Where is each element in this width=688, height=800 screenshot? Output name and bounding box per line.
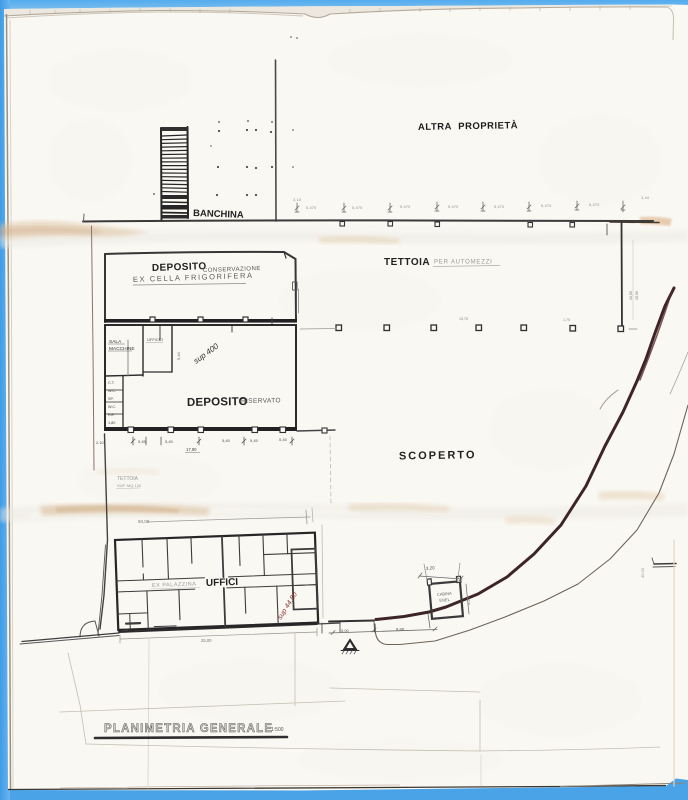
svg-text:UFFICI: UFFICI (206, 577, 239, 589)
svg-text:5,45: 5,45 (165, 439, 174, 444)
svg-text:5,45: 5,45 (250, 438, 259, 443)
svg-text:5,470: 5,470 (494, 205, 505, 209)
svg-text:3,44: 3,44 (641, 196, 649, 200)
svg-text:25,00: 25,00 (201, 638, 212, 643)
svg-text:PLANIMETRIA GENERALE: PLANIMETRIA GENERALE (104, 723, 273, 735)
svg-text:5,45: 5,45 (222, 438, 231, 443)
svg-text:W.C.: W.C. (108, 389, 116, 393)
svg-text:15,75: 15,75 (459, 317, 468, 321)
svg-text:ENEL: ENEL (439, 597, 451, 603)
svg-text:5,470: 5,470 (589, 203, 600, 207)
svg-text:3,10: 3,10 (293, 198, 301, 202)
svg-text:45,00: 45,00 (640, 567, 645, 578)
svg-text:DEPOSITO: DEPOSITO (187, 396, 248, 409)
svg-text:5,44: 5,44 (176, 351, 181, 360)
svg-text:50,00: 50,00 (138, 519, 150, 524)
svg-text:17,90: 17,90 (186, 447, 197, 452)
svg-text:5,470: 5,470 (306, 206, 317, 210)
svg-text:1,75: 1,75 (563, 318, 570, 322)
svg-text:5,470: 5,470 (541, 204, 552, 208)
svg-text:5,45: 5,45 (279, 437, 288, 442)
svg-text:UFFICIO: UFFICIO (147, 337, 163, 342)
svg-text:10,50: 10,50 (629, 291, 633, 300)
svg-text:W.C.: W.C. (108, 405, 116, 409)
svg-text:ALTRA PROPRIETÀ: ALTRA PROPRIETÀ (418, 120, 518, 133)
svg-text:PER AUTOMEZZI: PER AUTOMEZZI (434, 260, 493, 266)
svg-text:5,45: 5,45 (138, 439, 147, 444)
svg-text:RISERVATO: RISERVATO (241, 397, 281, 405)
svg-text:TETTOIA: TETTOIA (384, 257, 430, 268)
svg-text:5,470: 5,470 (448, 205, 459, 209)
svg-text:3,20: 3,20 (426, 565, 436, 571)
svg-text:1,80: 1,80 (108, 421, 115, 425)
svg-text:TETTOIA: TETTOIA (117, 476, 139, 482)
svg-text:5,470: 5,470 (352, 206, 363, 210)
svg-text:1:500: 1:500 (271, 727, 284, 733)
svg-text:RIP.: RIP. (108, 413, 115, 417)
svg-text:5,20: 5,20 (466, 596, 471, 605)
svg-text:9,80: 9,80 (396, 627, 405, 632)
svg-text:5,00: 5,00 (341, 628, 350, 633)
svg-text:15,50: 15,50 (635, 291, 639, 300)
svg-text:BANCHINA: BANCHINA (193, 208, 244, 221)
svg-text:2,10: 2,10 (96, 440, 105, 445)
svg-text:SUP. MQ 120: SUP. MQ 120 (117, 483, 142, 488)
svg-text:5,470: 5,470 (400, 205, 411, 209)
svg-text:SP.: SP. (108, 397, 114, 401)
svg-text:SCOPERTO: SCOPERTO (399, 449, 477, 462)
svg-text:C.T.: C.T. (108, 381, 115, 385)
